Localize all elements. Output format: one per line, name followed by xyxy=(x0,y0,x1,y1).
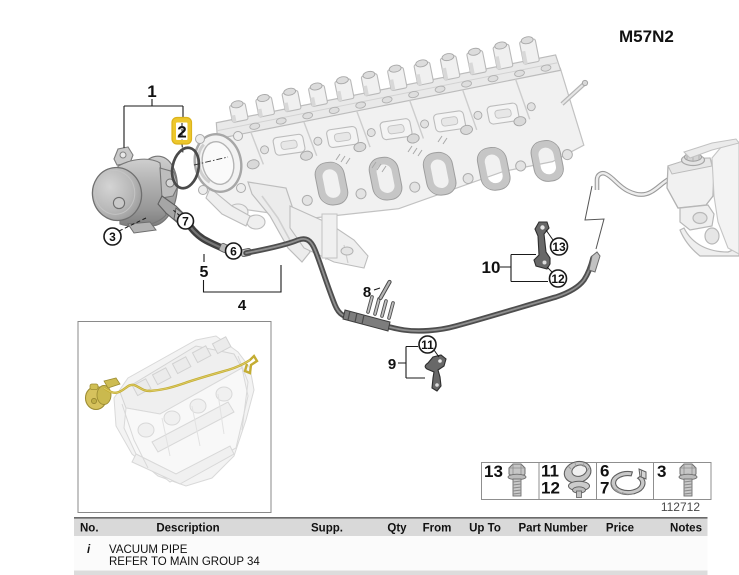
svg-text:Supp.: Supp. xyxy=(311,523,343,535)
svg-text:Up To: Up To xyxy=(469,523,501,535)
svg-text:1: 1 xyxy=(147,82,156,101)
svg-text:2: 2 xyxy=(177,123,186,142)
svg-text:VACUUM PIPE: VACUUM PIPE xyxy=(109,544,188,556)
svg-text:4: 4 xyxy=(238,297,247,314)
svg-text:REFER TO MAIN GROUP 34: REFER TO MAIN GROUP 34 xyxy=(109,556,260,568)
svg-text:6: 6 xyxy=(230,245,237,259)
svg-text:3: 3 xyxy=(657,462,666,481)
svg-text:112712: 112712 xyxy=(661,500,700,514)
svg-text:12: 12 xyxy=(551,272,565,286)
svg-text:Description: Description xyxy=(156,523,219,535)
svg-text:3: 3 xyxy=(109,230,116,244)
svg-text:10: 10 xyxy=(482,258,501,277)
svg-text:8: 8 xyxy=(363,284,371,301)
svg-text:M57N2: M57N2 xyxy=(619,27,674,46)
svg-text:12: 12 xyxy=(541,479,560,498)
svg-text:No.: No. xyxy=(80,523,99,535)
svg-text:13: 13 xyxy=(552,240,566,254)
svg-text:7: 7 xyxy=(600,479,609,498)
svg-text:5: 5 xyxy=(200,264,209,281)
svg-text:13: 13 xyxy=(484,462,503,481)
svg-text:Part Number: Part Number xyxy=(518,523,588,535)
svg-text:Price: Price xyxy=(606,523,634,535)
svg-text:Notes: Notes xyxy=(670,523,702,535)
svg-text:7: 7 xyxy=(182,215,189,229)
svg-text:From: From xyxy=(423,523,452,535)
svg-text:11: 11 xyxy=(421,338,434,352)
svg-text:Qty: Qty xyxy=(387,523,407,535)
svg-text:9: 9 xyxy=(388,356,396,373)
